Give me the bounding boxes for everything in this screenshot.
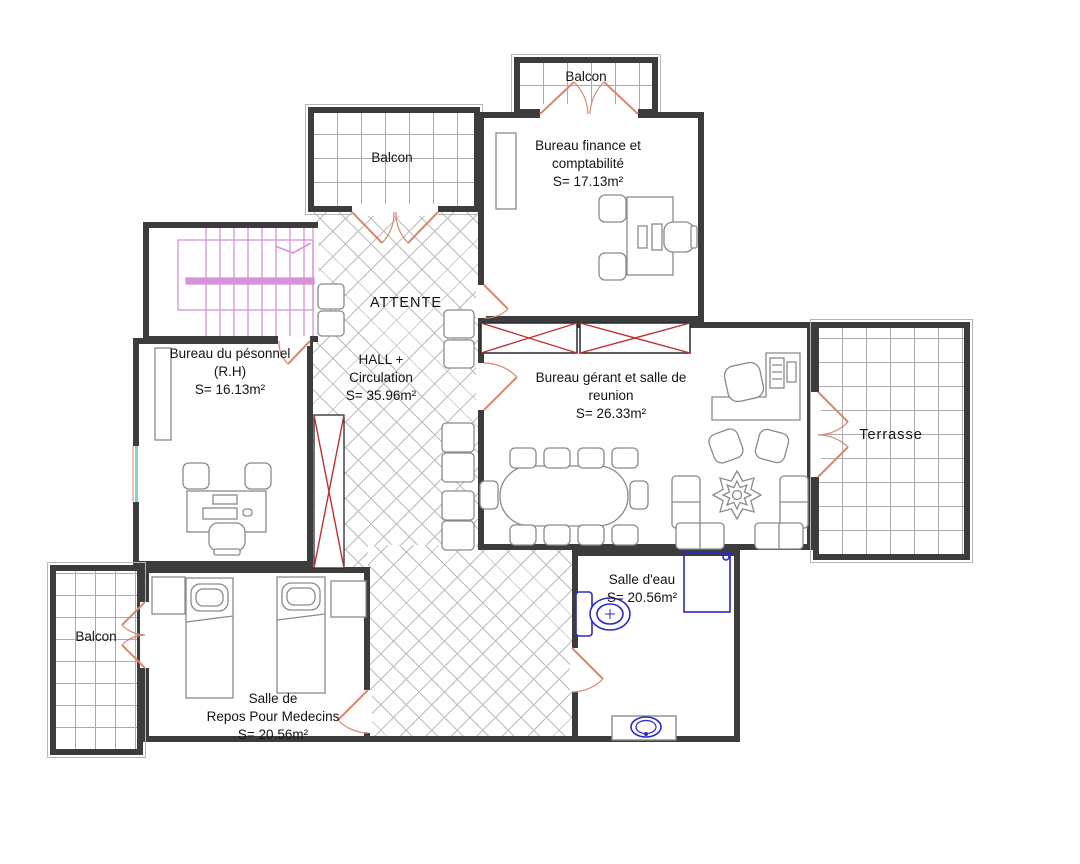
room-balcon-top	[514, 57, 658, 115]
label-terrasse: Terrasse	[859, 426, 923, 444]
label-salle-eau: Salle d'eau S= 20.56m²	[607, 571, 677, 607]
room-hall-corridor	[368, 545, 572, 742]
label-hall: HALL + Circulation S= 35.96m²	[346, 351, 416, 405]
floor-plan-canvas: Balcon Bureau finance et comptabilité S=…	[0, 0, 1080, 864]
room-staircase	[143, 222, 318, 342]
label-balcon-upper: Balcon	[371, 149, 412, 167]
label-bureau-finance: Bureau finance et comptabilité S= 17.13m…	[535, 137, 641, 191]
room-balcon-bottom	[50, 565, 143, 755]
room-bureau-gerant	[478, 322, 813, 550]
label-balcon-top: Balcon	[565, 68, 606, 86]
label-salle-repos: Salle de Repos Pour Medecins S= 20.56m²	[207, 690, 340, 744]
label-balcon-bottom: Balcon	[75, 628, 116, 646]
label-bureau-personnel: Bureau du pésonnel (R.H) S= 16.13m²	[170, 345, 291, 399]
label-bureau-gerant: Bureau gérant et salle de reunion S= 26.…	[536, 369, 687, 423]
label-attente: ATTENTE	[370, 294, 442, 312]
